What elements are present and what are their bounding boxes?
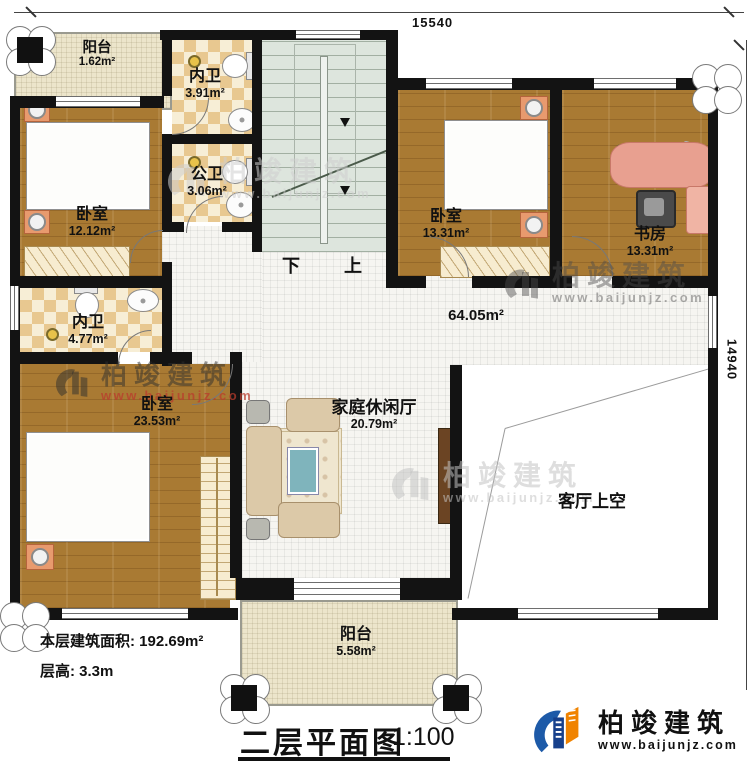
wall [550, 78, 562, 288]
window [708, 296, 717, 348]
title-underline [238, 757, 450, 761]
floor-plan-canvas: 15540 14940 下 上 [0, 0, 750, 775]
room-name: 公卫 [187, 166, 227, 184]
wall [612, 276, 718, 288]
room-label-bedroom-2: 卧室 13.31m² [423, 208, 470, 240]
wall [162, 36, 172, 96]
stair-arrow [340, 118, 350, 127]
dimension-line-right [746, 40, 747, 690]
room-area: 13.31m² [627, 244, 674, 258]
column-decor [220, 674, 268, 722]
room-area: 4.77m² [68, 332, 108, 346]
room-area: 64.05m² [448, 308, 504, 325]
wall [222, 222, 252, 232]
nightstand [26, 544, 54, 570]
dimension-label-top: 15540 [412, 15, 453, 30]
wall [398, 276, 426, 288]
room-label-balcony-top: 阳台 1.62m² [79, 40, 115, 69]
wall [400, 578, 462, 600]
wall [236, 578, 294, 600]
window [426, 78, 512, 89]
sliding-door [294, 582, 400, 595]
wardrobe [24, 246, 130, 278]
brand-logo: 柏竣建筑 www.baijunjz.com [532, 702, 738, 760]
room-name: 内卫 [68, 314, 108, 332]
side-table [246, 400, 270, 424]
room-area: 1.62m² [79, 56, 115, 69]
room-area: 23.53m² [134, 414, 181, 428]
brand-name: 柏竣建筑 [598, 710, 738, 736]
living-void-floor [462, 365, 708, 608]
room-area: 12.12m² [69, 224, 116, 238]
nightstand [520, 212, 548, 238]
room-name: 阳台 [336, 626, 376, 644]
plan-scale: 1:100 [392, 723, 455, 752]
room-name: 书房 [627, 226, 674, 244]
sink-basin [127, 289, 159, 312]
wall [10, 352, 118, 364]
sink-basin [226, 192, 255, 218]
corridor-floor [162, 226, 262, 364]
room-area: 20.79m² [332, 417, 417, 431]
sofa [278, 502, 340, 538]
wall-lamp [188, 55, 201, 68]
stair-arrow [340, 186, 350, 195]
nightstand [520, 96, 548, 120]
column-decor [432, 674, 480, 722]
wall [162, 222, 184, 232]
room-label-study: 书房 13.31m² [627, 226, 674, 258]
monitor-screen [644, 198, 664, 216]
room-name: 客厅上空 [558, 492, 626, 511]
room-name: 卧室 [134, 396, 181, 414]
stair-up-label: 上 [344, 252, 362, 278]
room-name: 阳台 [79, 40, 115, 56]
stair-rail [320, 56, 328, 244]
column-decor [692, 64, 740, 112]
wall [708, 78, 718, 620]
room-label-living-void: 客厅上空 [558, 492, 626, 511]
bed [444, 120, 548, 210]
room-label-bedroom-3: 卧室 23.53m² [134, 396, 181, 428]
wall-lamp [46, 328, 59, 341]
window [518, 608, 658, 619]
room-label-balcony-bottom: 阳台 5.58m² [336, 626, 376, 658]
window [62, 608, 188, 619]
wall [230, 352, 242, 578]
room-name: 卧室 [423, 208, 470, 226]
brand-url: www.baijunjz.com [598, 738, 738, 752]
floor-area-info: 本层建筑面积: 192.69m² [40, 630, 203, 651]
plan-title: 二层平面图 [240, 718, 405, 762]
stair-down-label: 下 [282, 252, 300, 278]
wall [10, 276, 172, 288]
wardrobe-rail [216, 458, 218, 596]
room-area: 3.06m² [187, 184, 227, 198]
room-label-family-lounge: 家庭休闲厅 20.79m² [332, 398, 417, 431]
room-name: 内卫 [185, 68, 225, 86]
room-area: 5.58m² [336, 644, 376, 658]
hall-area-label: 64.05m² [448, 308, 504, 325]
floor-height-info: 层高: 3.3m [40, 660, 113, 681]
dimension-line-top [14, 12, 744, 13]
room-label-bath-public: 公卫 3.06m² [187, 166, 227, 198]
side-table [246, 518, 270, 540]
desk [610, 142, 714, 188]
room-label-bedroom-1: 卧室 12.12m² [69, 206, 116, 238]
room-label-bath-top: 内卫 3.91m² [185, 68, 225, 100]
bed [26, 122, 150, 210]
coffee-table [288, 448, 318, 494]
nightstand [24, 210, 50, 234]
bed [26, 432, 150, 542]
room-label-bath-mid: 内卫 4.77m² [68, 314, 108, 346]
balcony-door-window [56, 96, 140, 107]
wall [450, 365, 462, 580]
toilet [222, 54, 248, 78]
column-decor [6, 26, 54, 74]
wall [160, 30, 398, 40]
window [296, 30, 360, 39]
room-area: 13.31m² [423, 226, 470, 240]
wall [162, 134, 262, 144]
room-area: 3.91m² [185, 86, 225, 100]
window [10, 286, 19, 330]
room-name: 家庭休闲厅 [332, 398, 417, 417]
room-name: 卧室 [69, 206, 116, 224]
wall [386, 30, 398, 288]
dimension-label-right: 14940 [725, 330, 740, 390]
brand-logo-icon [532, 702, 590, 760]
wall [162, 352, 192, 364]
window [594, 78, 676, 89]
wall [162, 134, 172, 230]
sofa [246, 426, 282, 516]
dimension-tick [733, 39, 744, 50]
